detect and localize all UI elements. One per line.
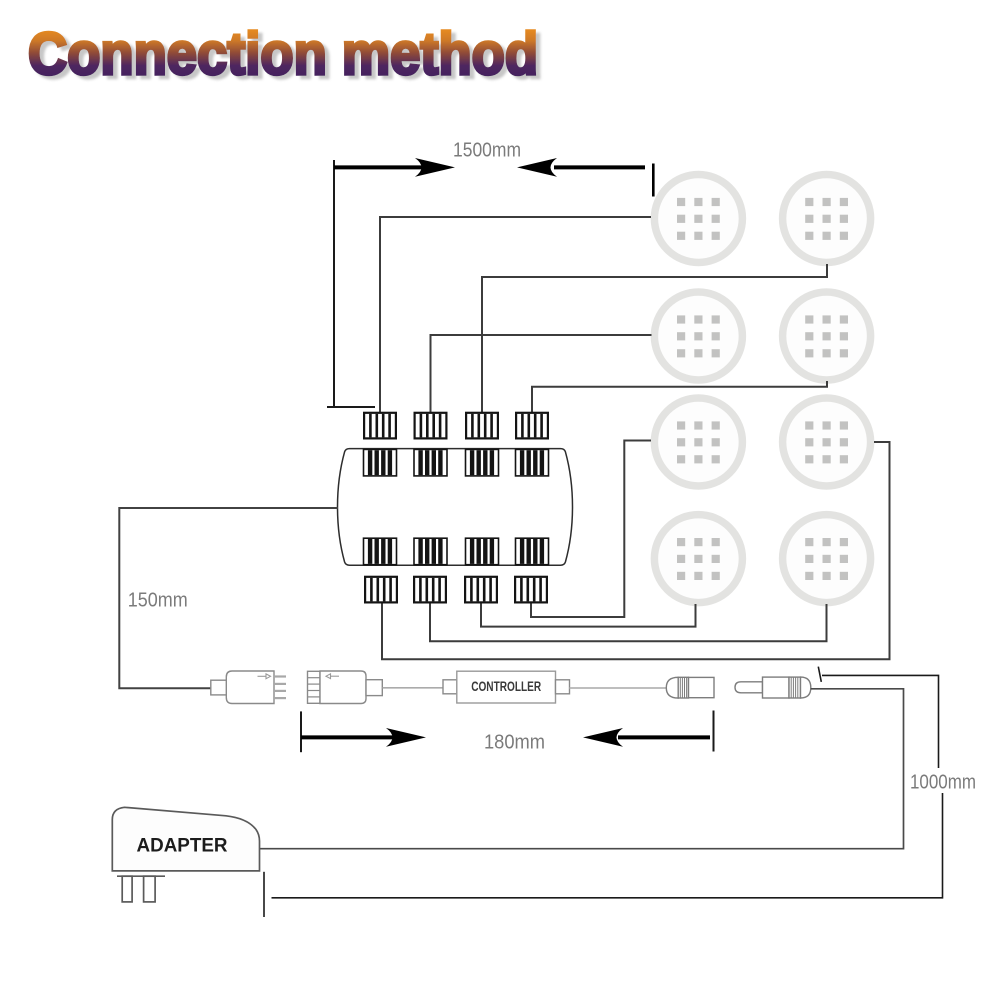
- svg-text:180mm: 180mm: [484, 732, 545, 754]
- svg-text:150mm: 150mm: [128, 590, 188, 612]
- svg-text:Connection method: Connection method: [28, 21, 538, 87]
- svg-text:ADAPTER: ADAPTER: [137, 836, 228, 857]
- svg-text:1000mm: 1000mm: [910, 772, 976, 794]
- svg-text:CONTROLLER: CONTROLLER: [471, 679, 541, 694]
- svg-text:1500mm: 1500mm: [453, 140, 521, 162]
